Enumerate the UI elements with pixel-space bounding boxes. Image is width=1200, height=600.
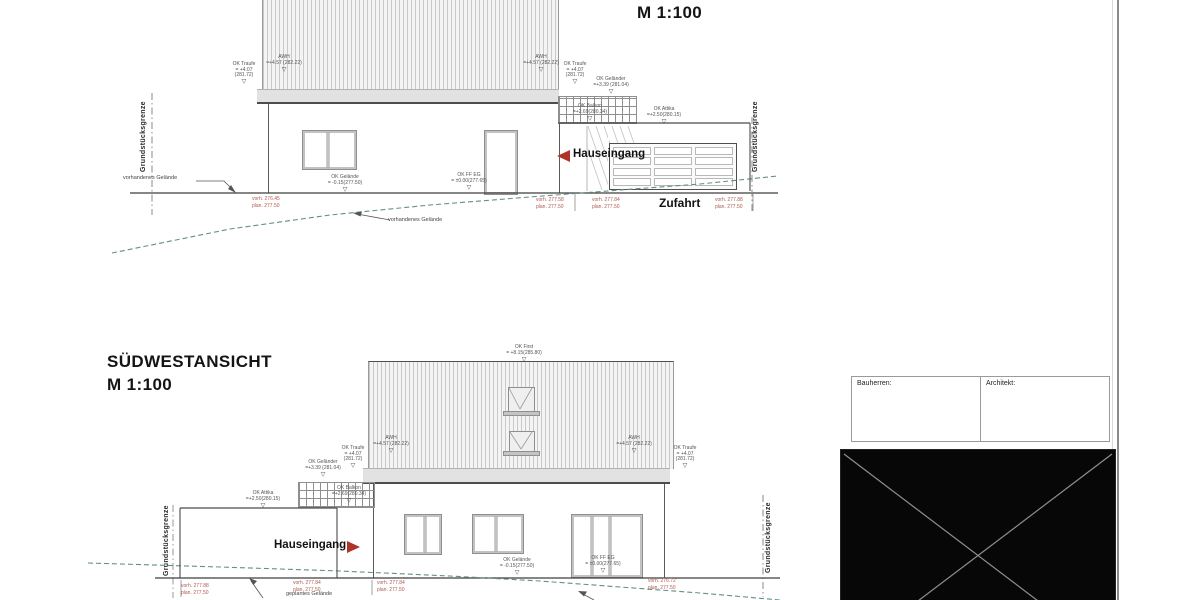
elevation-marker-icon: ▽	[616, 448, 652, 454]
elevation-marker-icon: ▽	[373, 448, 409, 454]
window-mullion	[327, 133, 329, 167]
elevation-marker-icon: ▽	[246, 503, 280, 509]
plan-sheet: NORDOSTANSICHT M 1:100 AWH=+4.57 (282.22…	[0, 0, 1200, 600]
sheet-border	[1117, 0, 1119, 600]
elevation-marker-icon: ▽	[647, 119, 681, 125]
elev-traufe-mid: OK Traufe= +4.07(281.72)▽	[342, 446, 365, 469]
elev-awh-right: AWH=+4.57 (282.22)▽	[523, 55, 559, 73]
elev-balkon-bottom: OK Balkon=+2.69(280.34)▽	[332, 486, 366, 504]
elev-gelaende-top: OK Gelände= -0.15(277.50)▽	[328, 175, 362, 193]
elev-balkon-top: OK Balkon=+2.69(280.34)▽	[573, 104, 607, 122]
eave-band-top	[257, 89, 559, 104]
window-top	[303, 131, 356, 169]
elevation-marker-icon: ▽	[328, 187, 362, 193]
elevation-marker-icon: ▽	[342, 463, 365, 469]
grade-values: vorh. 277.88plan. 277.50	[715, 197, 743, 210]
view-scale-bottom: M 1:100	[107, 375, 172, 395]
grade-values: vorh. 277.84plan. 277.50	[377, 580, 405, 593]
elev-gelaende-bottom: OK Gelände= -0.15(277.50)▽	[500, 558, 534, 576]
property-line-label: Grundstücksgrenze	[140, 101, 147, 172]
entrance-door-top	[485, 131, 517, 194]
entrance-label-top: Hauseingang	[573, 148, 645, 160]
elev-traufe-right: OK Traufe= +4.07(281.72)▽	[564, 62, 587, 85]
elev-traufe-right: OK Traufe= +4.07(281.72)▽	[674, 446, 697, 469]
grade-values: vorh. 276.45plan. 277.50	[252, 196, 280, 209]
elevation-marker-icon: ▽	[500, 570, 534, 576]
grade-values: vorh. 277.84plan. 277.50	[592, 197, 620, 210]
elev-first: OK First= +8.15(285.80)▽	[506, 345, 542, 363]
elevation-marker-icon: ▽	[506, 357, 542, 363]
entrance-arrow-icon	[557, 150, 570, 162]
eave-band-bottom	[363, 468, 670, 484]
elev-gelaender-bottom: OK Geländer=+3.39 (281.04)▽	[305, 460, 341, 478]
elevation-marker-icon: ▽	[585, 568, 620, 574]
property-line-label: Grundstücksgrenze	[752, 101, 759, 172]
planned-grade-label: geplantes Gelände	[286, 591, 332, 597]
title-block-bauherren: Bauherren:	[852, 377, 980, 441]
placeholder-cross-icon	[841, 450, 1115, 600]
grade-values: vorh. 276.72plan. 277.50	[648, 578, 676, 591]
entrance-label-bottom: Hauseingang	[274, 539, 346, 551]
property-line-label: Grundstücksgrenze	[163, 505, 170, 576]
elevation-marker-icon: ▽	[674, 463, 697, 469]
elevation-marker-icon: ▽	[593, 89, 629, 95]
elevation-marker-icon: ▽	[305, 472, 341, 478]
grade-values: vorh. 277.88plan. 277.50	[181, 583, 209, 596]
grade-values: vorh. 277.58plan. 277.50	[536, 197, 564, 210]
title-block-architekt: Architekt:	[980, 377, 1109, 441]
view-title-bottom: SÜDWESTANSICHT	[107, 352, 272, 372]
property-line-label: Grundstücksgrenze	[765, 502, 772, 573]
driveway-label: Zufahrt	[659, 196, 700, 210]
elevation-marker-icon: ▽	[233, 79, 256, 85]
skylight-sill	[503, 451, 540, 456]
elevation-marker-icon: ▽	[266, 67, 302, 73]
elev-awh-left: AWH=+4.57 (282.22)▽	[266, 55, 302, 73]
window-bottom-2	[473, 515, 523, 553]
elevation-marker-icon: ▽	[573, 116, 607, 122]
elev-traufe-left: OK Traufe= +4.07(281.72)▽	[233, 62, 256, 85]
elevation-marker-icon: ▽	[451, 185, 486, 191]
image-placeholder	[840, 449, 1116, 600]
view-scale-top: M 1:100	[637, 3, 702, 23]
skylight	[509, 431, 535, 452]
elev-awh-right: AWH=+4.57 (282.22)▽	[616, 436, 652, 454]
elevation-marker-icon: ▽	[332, 498, 366, 504]
elev-gelaender-top: OK Geländer=+3.39 (281.04)▽	[593, 77, 629, 95]
window-mullion	[424, 517, 426, 552]
title-block: Bauherren: Architekt:	[851, 376, 1110, 442]
elevation-marker-icon: ▽	[523, 67, 559, 73]
elev-attika-bottom: OK Attika=+2.50(280.15)▽	[246, 491, 280, 509]
elev-ffeg-bottom: OK FF EG= ±0.00(277.65)▽	[585, 556, 620, 574]
skylight-sill	[503, 411, 540, 416]
roof-top-elevation	[262, 0, 559, 89]
window-mullion	[495, 517, 497, 551]
existing-grade-label: vorhandenes Gelände	[123, 175, 177, 181]
elev-attika-top: OK Attika=+2.50(280.15)▽	[647, 107, 681, 125]
elev-awh-left: AWH=+4.57 (282.22)▽	[373, 436, 409, 454]
elev-ffeg-top: OK FF EG= ±0.00(277.65)▽	[451, 173, 486, 191]
elevation-marker-icon: ▽	[564, 79, 587, 85]
existing-grade-label: vorhandenes Gelände	[388, 217, 442, 223]
window-bottom-1	[405, 515, 441, 554]
skylight	[508, 387, 535, 412]
entrance-arrow-icon	[347, 541, 360, 553]
